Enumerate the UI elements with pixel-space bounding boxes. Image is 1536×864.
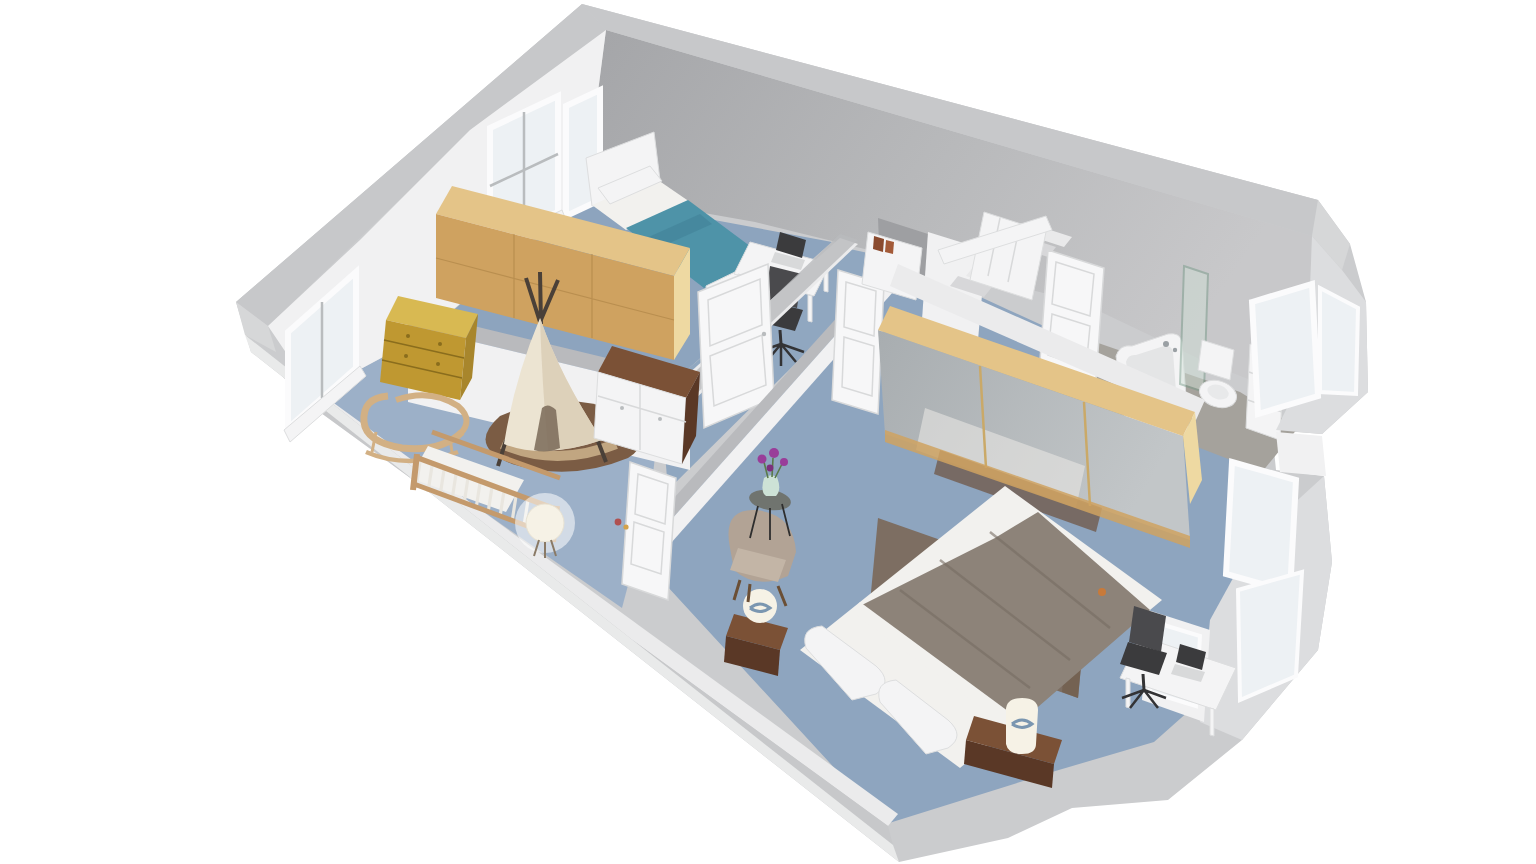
flower-vase	[762, 475, 779, 496]
master-bedroom-door	[832, 270, 884, 414]
kids-door-handle	[762, 332, 766, 336]
lamp-sphere	[526, 504, 564, 542]
dresser-knob-3	[404, 354, 408, 358]
floorplan-render	[0, 0, 1536, 864]
changing-knob	[620, 406, 624, 410]
dresser-knob-2	[438, 342, 442, 346]
chair2-stem	[1143, 674, 1144, 690]
flower-4	[767, 465, 774, 472]
master-bay-window-2	[1238, 572, 1302, 700]
flower-2	[769, 448, 779, 458]
floorplan-svg	[0, 0, 1536, 864]
books-2	[885, 240, 894, 254]
chair-stem	[780, 330, 781, 344]
master-bay-window	[1226, 462, 1296, 592]
toy	[615, 519, 622, 526]
desk-leg-2	[808, 295, 812, 322]
nursery-door-open	[622, 462, 676, 600]
bath-tap	[1173, 348, 1177, 352]
shower-glass-screen	[1180, 266, 1208, 392]
gold-dresser	[380, 296, 478, 400]
toy-2	[623, 524, 628, 529]
bathroom-bay-window	[1252, 284, 1318, 414]
flower	[758, 455, 767, 464]
dresser-knob	[406, 334, 410, 338]
bathroom-bay-window-2	[1320, 288, 1358, 394]
bay-recess-face	[1276, 432, 1326, 476]
bath-faucet	[1163, 341, 1169, 347]
nook-desk-leg-2	[1210, 708, 1214, 736]
changing-knob-2	[658, 417, 662, 421]
nook-desk-leg	[1126, 678, 1130, 708]
nursery-door-panel	[622, 462, 676, 600]
bed-accent	[1098, 588, 1106, 596]
flower-3	[780, 458, 788, 466]
dresser-knob-4	[436, 362, 440, 366]
